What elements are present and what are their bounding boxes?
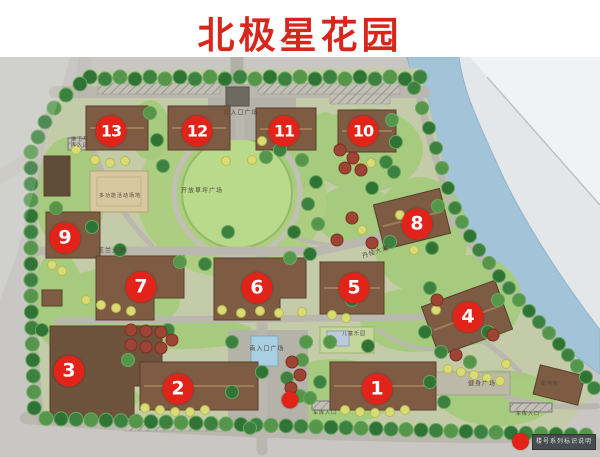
- building-badge-7: 7: [126, 272, 157, 303]
- building-badge-4: 4: [453, 302, 484, 333]
- building-badge-12: 12: [182, 116, 213, 147]
- legend-red-dot-icon: [512, 433, 529, 450]
- building-badge-9: 9: [50, 223, 81, 254]
- label-children-playground: 儿童乐园: [342, 332, 366, 338]
- label-garage-entrance-sw: 车库入口: [313, 411, 337, 417]
- label-garage-entrance-nw: 地下车 库入口: [71, 137, 89, 149]
- label-yulan-avenue: 玉兰大道: [98, 249, 126, 256]
- label-garage-entrance-se: 车库入口: [516, 412, 540, 418]
- building-badge-3: 3: [54, 356, 85, 387]
- map-legend: 楼号系列标识说明: [512, 433, 596, 450]
- label-osmanthus-avenue: 丹桂大道: [362, 245, 391, 260]
- screenshot-root: 北极星花园: [0, 0, 600, 457]
- building-badge-5: 5: [339, 273, 370, 304]
- site-plan-map: 楼号系列标识说明 12345678910111213北入口广场开放草坪广场多功能…: [0, 57, 600, 457]
- location-marker-dot: [282, 392, 299, 409]
- label-north-entrance-plaza: 北入口广场: [223, 111, 258, 118]
- label-south-entrance-plaza: 南入口广场: [249, 347, 284, 354]
- page-title: 北极星花园: [0, 0, 600, 59]
- building-badge-11: 11: [269, 116, 300, 147]
- building-badge-10: 10: [348, 116, 379, 147]
- building-badge-2: 2: [163, 374, 194, 405]
- label-open-lawn-plaza: 开放草坪广场: [181, 189, 223, 196]
- building-badge-13: 13: [96, 116, 127, 147]
- label-power-room: 配电房: [541, 382, 559, 388]
- label-multifunction-court: 多功能活动场地: [99, 194, 141, 200]
- building-badge-8: 8: [402, 209, 433, 240]
- map-overlay: 楼号系列标识说明 12345678910111213北入口广场开放草坪广场多功能…: [0, 0, 600, 457]
- label-fitness-plaza: 健身广场: [468, 382, 496, 389]
- building-badge-6: 6: [242, 273, 273, 304]
- building-badge-1: 1: [362, 374, 393, 405]
- legend-caption: 楼号系列标识说明: [532, 434, 596, 450]
- title-bar: 北极星花园: [0, 0, 600, 57]
